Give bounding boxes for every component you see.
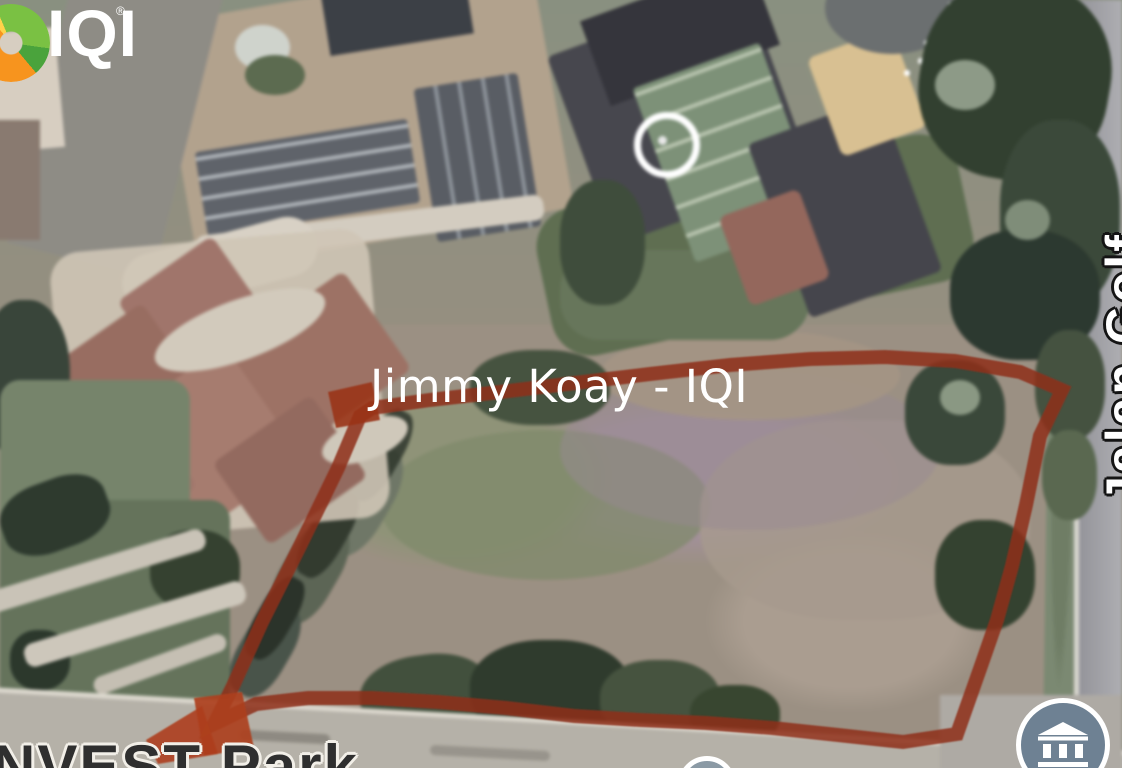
bank-landmark-icon [1038,722,1088,768]
place-name-label: NVEST Park [0,732,359,768]
iqi-logo-icon [0,4,50,82]
agent-watermark: Jimmy Koay - IQI [370,360,748,413]
trademark-symbol: ® [116,4,125,18]
iqi-logo: IQI ® [0,0,200,110]
map-viewport[interactable]: Jimmy Koay - IQI IQI ® Jalan Golf NVEST … [0,0,1122,768]
road-name-label: Jalan Golf [1094,188,1122,548]
